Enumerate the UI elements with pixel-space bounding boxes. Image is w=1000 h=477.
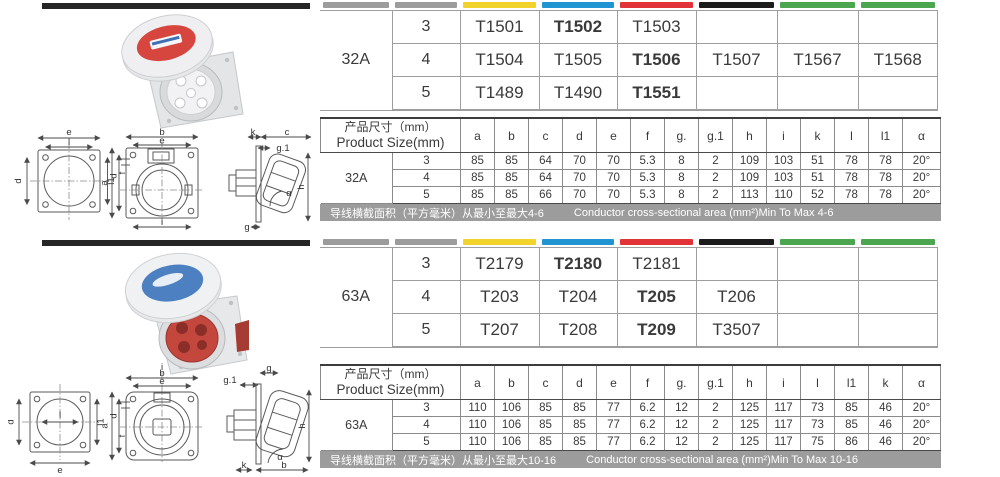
dim-col-header: f	[631, 118, 665, 153]
dim-value: 64	[529, 170, 563, 187]
dim-value: 20°	[903, 417, 941, 434]
conductor-note-cn: 导线横截面积（平方毫米）从最小至最大4-6	[330, 205, 544, 221]
model-cell: T209	[617, 314, 696, 348]
dim-value: 117	[767, 417, 801, 434]
dim-value: 78	[835, 170, 869, 187]
dim-value: 8	[665, 187, 699, 204]
dim-col-header: g.1	[699, 118, 733, 153]
size-table-32a: 产品尺寸（mm） Product Size(mm) a b c d e f g.…	[320, 117, 941, 221]
color-strip-yellow	[463, 239, 536, 245]
product-photo-32a-socket	[95, 10, 245, 130]
size-header-row: 产品尺寸（mm） Product Size(mm) a b c d e f g.…	[321, 365, 941, 400]
dim-value: 51	[801, 153, 835, 170]
color-strip-gray	[323, 2, 389, 8]
catalog-page: e l d l1 b e a d f i	[0, 0, 1000, 477]
dim-value: 2	[699, 434, 733, 451]
dim-value: 85	[461, 187, 495, 204]
dim-label: c	[285, 128, 290, 138]
dim-value: 73	[801, 417, 835, 434]
dim-col-header: d	[563, 365, 597, 400]
pole-count-cell: 3	[393, 400, 461, 417]
dim-col-header: h	[733, 365, 767, 400]
dim-value: 70	[563, 153, 597, 170]
dim-col-header: k	[801, 118, 835, 153]
size-row: 63A 3 110 106 85 85 77 6.2 12 2 125 117 …	[321, 400, 941, 417]
pole-count-cell: 4	[393, 170, 461, 187]
dim-label: f	[117, 171, 128, 174]
dim-value: 20°	[903, 153, 941, 170]
dim-label: g	[244, 222, 249, 232]
dim-value: 85	[529, 417, 563, 434]
model-cell	[696, 248, 777, 281]
color-strip-black	[699, 239, 774, 245]
dim-value: 75	[801, 434, 835, 451]
dim-value: 106	[495, 434, 529, 451]
dim-value: 46	[869, 417, 903, 434]
dim-label: a	[99, 180, 110, 186]
size-row: 4 85 85 64 70 70 5.3 8 2 109 103 51 78 7…	[321, 170, 941, 187]
color-strip-green	[861, 239, 935, 245]
dim-value: 70	[597, 187, 631, 204]
dim-col-header: e	[597, 365, 631, 400]
dim-value: 2	[699, 417, 733, 434]
dim-value: 78	[869, 153, 903, 170]
dim-col-header: d	[563, 118, 597, 153]
dim-col-header: l1	[869, 118, 903, 153]
size-title-en: Product Size(mm)	[321, 382, 460, 399]
size-table-title: 产品尺寸（mm） Product Size(mm)	[321, 365, 461, 400]
model-cell	[777, 248, 858, 281]
pole-count-cell: 5	[392, 77, 460, 111]
dim-value: 51	[801, 170, 835, 187]
model-cell: T1502	[539, 11, 617, 44]
rating-cell: 32A	[321, 153, 393, 204]
conductor-note-en: Conductor cross-sectional area (mm²)Min …	[586, 454, 858, 466]
dim-value: 8	[665, 170, 699, 187]
dim-value: 12	[665, 417, 699, 434]
dim-value: 110	[461, 434, 495, 451]
dim-label: b	[281, 460, 286, 471]
dim-value: 110	[767, 187, 801, 204]
dim-value: 78	[869, 170, 903, 187]
dim-col-header: a	[461, 365, 495, 400]
dim-label: k	[251, 128, 256, 138]
dim-value: 78	[869, 187, 903, 204]
dim-value: 5.3	[631, 153, 665, 170]
model-cell	[777, 281, 858, 314]
dim-col-header: h	[733, 118, 767, 153]
dim-col-header: c	[529, 365, 563, 400]
conductor-note-bar: 导线横截面积（平方毫米）从最小至最大4-6 Conductor cross-se…	[320, 204, 941, 221]
pole-count-cell: 3	[392, 248, 460, 281]
dim-label: h	[296, 184, 307, 189]
dim-value: 2	[699, 170, 733, 187]
dim-value: 20°	[903, 434, 941, 451]
dim-value: 85	[529, 434, 563, 451]
model-table-63a: 63A 3 T2179 T2180 T2181 4 T203 T204 T205…	[320, 239, 938, 348]
dim-value: 5.3	[631, 170, 665, 187]
pole-count-cell: 5	[393, 434, 461, 451]
dim-value: 125	[733, 400, 767, 417]
color-strip-gray	[395, 239, 457, 245]
color-strip-red	[620, 2, 693, 8]
dim-value: 20°	[903, 170, 941, 187]
model-cell: T1490	[539, 77, 617, 111]
model-cell: T1503	[617, 11, 696, 44]
dim-value: 85	[495, 170, 529, 187]
model-cell: T2181	[617, 248, 696, 281]
size-row: 5 110 106 85 85 77 6.2 12 2 125 117 75 8…	[321, 434, 941, 451]
dim-col-header: l	[801, 365, 835, 400]
color-strip-green	[861, 2, 935, 8]
conductor-note-bar: 导线横截面积（平方毫米）从最小至最大10-16 Conductor cross-…	[320, 451, 941, 468]
model-row: 32A 3 T1501 T1502 T1503	[320, 11, 938, 44]
conductor-note-cn: 导线横截面积（平方毫米）从最小至最大10-16	[330, 452, 556, 468]
dim-value: 6.2	[631, 417, 665, 434]
model-cell: T206	[696, 281, 777, 314]
dim-value: 85	[835, 417, 869, 434]
dim-value: 110	[461, 417, 495, 434]
dim-col-header: a	[461, 118, 495, 153]
model-cell: T1501	[460, 11, 539, 44]
dim-label: k	[242, 460, 247, 471]
pole-count-cell: 4	[392, 281, 460, 314]
model-table-32a: 32A 3 T1501 T1502 T1503 4 T1504 T1505 T1…	[320, 2, 938, 111]
color-strip-red	[620, 239, 693, 245]
size-title-en: Product Size(mm)	[321, 135, 460, 152]
dim-value: 117	[767, 434, 801, 451]
color-strip-green	[780, 2, 855, 8]
dim-value: 12	[665, 400, 699, 417]
pole-count-cell: 5	[392, 314, 460, 348]
dim-col-header: g.1	[699, 365, 733, 400]
dim-value: 20°	[903, 400, 941, 417]
color-strip-yellow	[463, 2, 536, 8]
model-cell	[777, 77, 858, 111]
model-cell	[858, 11, 938, 44]
dim-value: 109	[733, 153, 767, 170]
dim-label: e	[159, 136, 164, 147]
dim-label: f	[117, 434, 128, 437]
model-cell: T1504	[460, 44, 539, 77]
dim-value: 85	[461, 153, 495, 170]
dim-col-header: α	[903, 118, 941, 153]
color-strip-gray	[323, 239, 389, 245]
dim-col-header: b	[495, 365, 529, 400]
model-cell	[858, 248, 938, 281]
dim-value: 70	[597, 170, 631, 187]
dim-value: 64	[529, 153, 563, 170]
size-row: 32A 3 85 85 64 70 70 5.3 8 2 109 103 51 …	[321, 153, 941, 170]
dim-value: 125	[733, 417, 767, 434]
dim-value: 70	[563, 170, 597, 187]
dim-value: 6.2	[631, 434, 665, 451]
dim-value: 103	[767, 170, 801, 187]
technical-drawing-63a: d l l1 e i b e a d f g g.1	[8, 362, 313, 476]
dim-value: 85	[495, 153, 529, 170]
dim-label: d	[13, 178, 24, 183]
dim-value: 85	[461, 170, 495, 187]
rating-cell: 32A	[320, 11, 392, 111]
dim-label: g.1	[276, 143, 289, 154]
model-cell	[696, 77, 777, 111]
dim-value: 110	[461, 400, 495, 417]
size-table-63a: 产品尺寸（mm） Product Size(mm) a b c d e f g.…	[320, 364, 941, 468]
model-cell: T1567	[777, 44, 858, 77]
dim-value: 2	[699, 187, 733, 204]
model-cell: T2180	[539, 248, 617, 281]
size-header-row: 产品尺寸（mm） Product Size(mm) a b c d e f g.…	[321, 118, 941, 153]
model-cell: T208	[539, 314, 617, 348]
dim-value: 78	[835, 187, 869, 204]
model-cell: T1551	[617, 77, 696, 111]
dim-value: 77	[597, 434, 631, 451]
model-row: 4 T203 T204 T205 T206	[320, 281, 938, 314]
dim-value: 85	[495, 187, 529, 204]
model-cell: T203	[460, 281, 539, 314]
dim-value: 70	[597, 153, 631, 170]
pole-count-cell: 3	[392, 11, 460, 44]
model-cell	[858, 314, 938, 348]
dim-label: d	[8, 419, 17, 424]
size-title-cn: 产品尺寸（mm）	[321, 367, 460, 382]
size-table-title: 产品尺寸（mm） Product Size(mm)	[321, 118, 461, 153]
dim-value: 6.2	[631, 400, 665, 417]
dim-value: 117	[767, 400, 801, 417]
dim-value: 103	[767, 153, 801, 170]
dim-value: 12	[665, 434, 699, 451]
model-cell: T1568	[858, 44, 938, 77]
model-cell: T2179	[460, 248, 539, 281]
dim-col-header: l1	[835, 365, 869, 400]
color-strip-green	[780, 239, 855, 245]
dim-value: 106	[495, 417, 529, 434]
dim-value: 85	[835, 400, 869, 417]
pole-count-cell: 3	[393, 153, 461, 170]
model-cell	[858, 77, 938, 111]
technical-drawing-32a: e l d l1 b e a d f i	[8, 128, 313, 232]
dim-label: g.1	[223, 375, 236, 386]
dim-label: l	[59, 410, 61, 421]
model-row: 63A 3 T2179 T2180 T2181	[320, 248, 938, 281]
section-divider-bar	[42, 3, 310, 9]
dim-col-header: c	[529, 118, 563, 153]
pole-count-cell: 4	[393, 417, 461, 434]
dim-value: 78	[835, 153, 869, 170]
model-cell: T204	[539, 281, 617, 314]
dim-value: 46	[869, 434, 903, 451]
dim-col-header: f	[631, 365, 665, 400]
dim-label: α	[286, 188, 292, 199]
dim-value: 85	[563, 400, 597, 417]
conductor-note-en: Conductor cross-sectional area (mm²)Min …	[574, 207, 834, 219]
dim-col-header: b	[495, 118, 529, 153]
dim-value: 20°	[903, 187, 941, 204]
size-row: 5 85 85 66 70 70 5.3 8 2 113 110 52 78 7…	[321, 187, 941, 204]
rating-cell: 63A	[320, 248, 392, 348]
dim-value: 85	[563, 434, 597, 451]
dim-value: 70	[563, 187, 597, 204]
model-cell	[777, 314, 858, 348]
model-cell: T1505	[539, 44, 617, 77]
size-title-cn: 产品尺寸（mm）	[321, 120, 460, 135]
model-cell	[696, 11, 777, 44]
model-row: 5 T1489 T1490 T1551	[320, 77, 938, 111]
model-cell	[777, 11, 858, 44]
dim-label: a	[100, 423, 111, 429]
color-strip-gray	[395, 2, 457, 8]
color-strip-black	[699, 2, 774, 8]
dim-col-header: g.	[665, 118, 699, 153]
dim-label: l	[68, 137, 70, 148]
pole-count-cell: 4	[392, 44, 460, 77]
dim-col-header: g.	[665, 365, 699, 400]
dim-label: g	[266, 363, 271, 374]
dim-value: 66	[529, 187, 563, 204]
model-cell: T207	[460, 314, 539, 348]
dim-value: 85	[563, 417, 597, 434]
dim-col-header: k	[869, 365, 903, 400]
dim-value: 106	[495, 400, 529, 417]
color-strip-blue	[542, 239, 614, 245]
dim-value: 2	[699, 400, 733, 417]
dim-value: 113	[733, 187, 767, 204]
dim-value: 109	[733, 170, 767, 187]
dim-value: 73	[801, 400, 835, 417]
model-row: 4 T1504 T1505 T1506 T1507 T1567 T1568	[320, 44, 938, 77]
dim-col-header: e	[597, 118, 631, 153]
dim-value: 85	[529, 400, 563, 417]
dim-col-header: i	[767, 118, 801, 153]
dim-value: 77	[597, 417, 631, 434]
dim-value: 86	[835, 434, 869, 451]
dim-value: 77	[597, 400, 631, 417]
model-row: 5 T207 T208 T209 T3507	[320, 314, 938, 348]
dim-value: 8	[665, 153, 699, 170]
rating-cell: 63A	[321, 400, 393, 451]
model-cell: T205	[617, 281, 696, 314]
dim-label: i	[161, 217, 163, 228]
model-cell	[858, 281, 938, 314]
model-cell: T1489	[460, 77, 539, 111]
model-cell: T3507	[696, 314, 777, 348]
dim-value: 125	[733, 434, 767, 451]
dim-col-header: i	[767, 365, 801, 400]
dim-label: e	[57, 465, 62, 476]
dim-label: d	[109, 413, 120, 418]
dim-value: 52	[801, 187, 835, 204]
dim-label: h	[297, 423, 308, 428]
size-row: 4 110 106 85 85 77 6.2 12 2 125 117 73 8…	[321, 417, 941, 434]
dim-value: 46	[869, 400, 903, 417]
dim-col-header: l	[835, 118, 869, 153]
dim-value: 2	[699, 153, 733, 170]
product-photo-63a-socket	[95, 246, 250, 376]
color-strip-row	[320, 239, 938, 247]
dim-value: 5.3	[631, 187, 665, 204]
dim-col-header: α	[903, 365, 941, 400]
color-strip-blue	[542, 2, 614, 8]
model-cell: T1506	[617, 44, 696, 77]
model-cell: T1507	[696, 44, 777, 77]
dim-label: e	[159, 376, 164, 387]
pole-count-cell: 5	[393, 187, 461, 204]
color-strip-row	[320, 2, 938, 10]
